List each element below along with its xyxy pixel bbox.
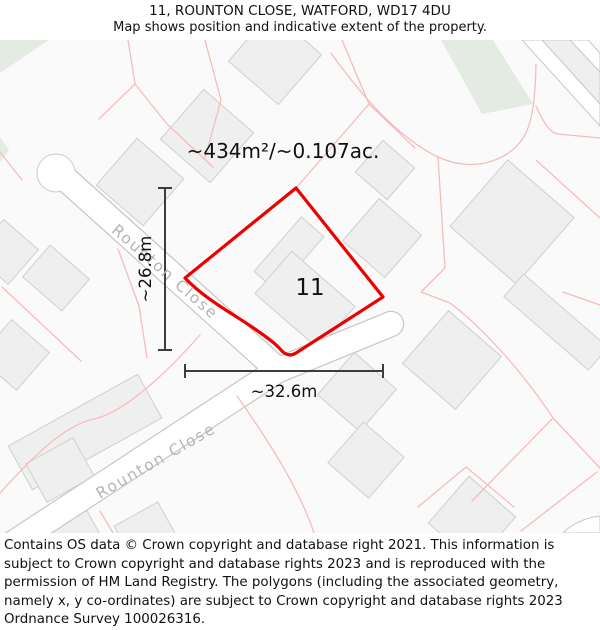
plot-number-label: 11 bbox=[295, 275, 324, 301]
map-canvas: Rounton Close Rounton Close ~434m²/~0.10… bbox=[0, 40, 600, 533]
parcel-line bbox=[563, 292, 600, 305]
road-bottom-right-corner bbox=[563, 516, 600, 533]
parcel-line bbox=[0, 152, 22, 180]
copyright-footer: Contains OS data © Crown copyright and d… bbox=[0, 533, 600, 625]
parcel-line bbox=[100, 511, 113, 533]
building bbox=[228, 40, 321, 105]
copyright-text: Contains OS data © Crown copyright and d… bbox=[0, 533, 600, 630]
building bbox=[403, 311, 502, 410]
area-label: ~434m²/~0.107ac. bbox=[187, 139, 380, 163]
width-dimension-label: ~32.6m bbox=[251, 382, 318, 401]
height-dimension-label: ~26.8m bbox=[136, 236, 155, 303]
building bbox=[504, 274, 600, 370]
building bbox=[114, 502, 182, 533]
parcel-line bbox=[237, 396, 314, 533]
building bbox=[160, 89, 253, 182]
building bbox=[317, 352, 396, 431]
building bbox=[428, 476, 515, 533]
map-container: Rounton Close Rounton Close ~434m²/~0.10… bbox=[0, 40, 600, 533]
building bbox=[450, 160, 574, 284]
page-subtitle: Map shows position and indicative extent… bbox=[113, 20, 487, 36]
green-area bbox=[441, 40, 533, 114]
building bbox=[328, 422, 404, 498]
report-header: 11, ROUNTON CLOSE, WATFORD, WD17 4DU Map… bbox=[0, 0, 600, 40]
page-title: 11, ROUNTON CLOSE, WATFORD, WD17 4DU bbox=[149, 3, 451, 20]
building bbox=[0, 320, 49, 391]
building bbox=[342, 198, 421, 277]
green-area bbox=[0, 40, 49, 73]
